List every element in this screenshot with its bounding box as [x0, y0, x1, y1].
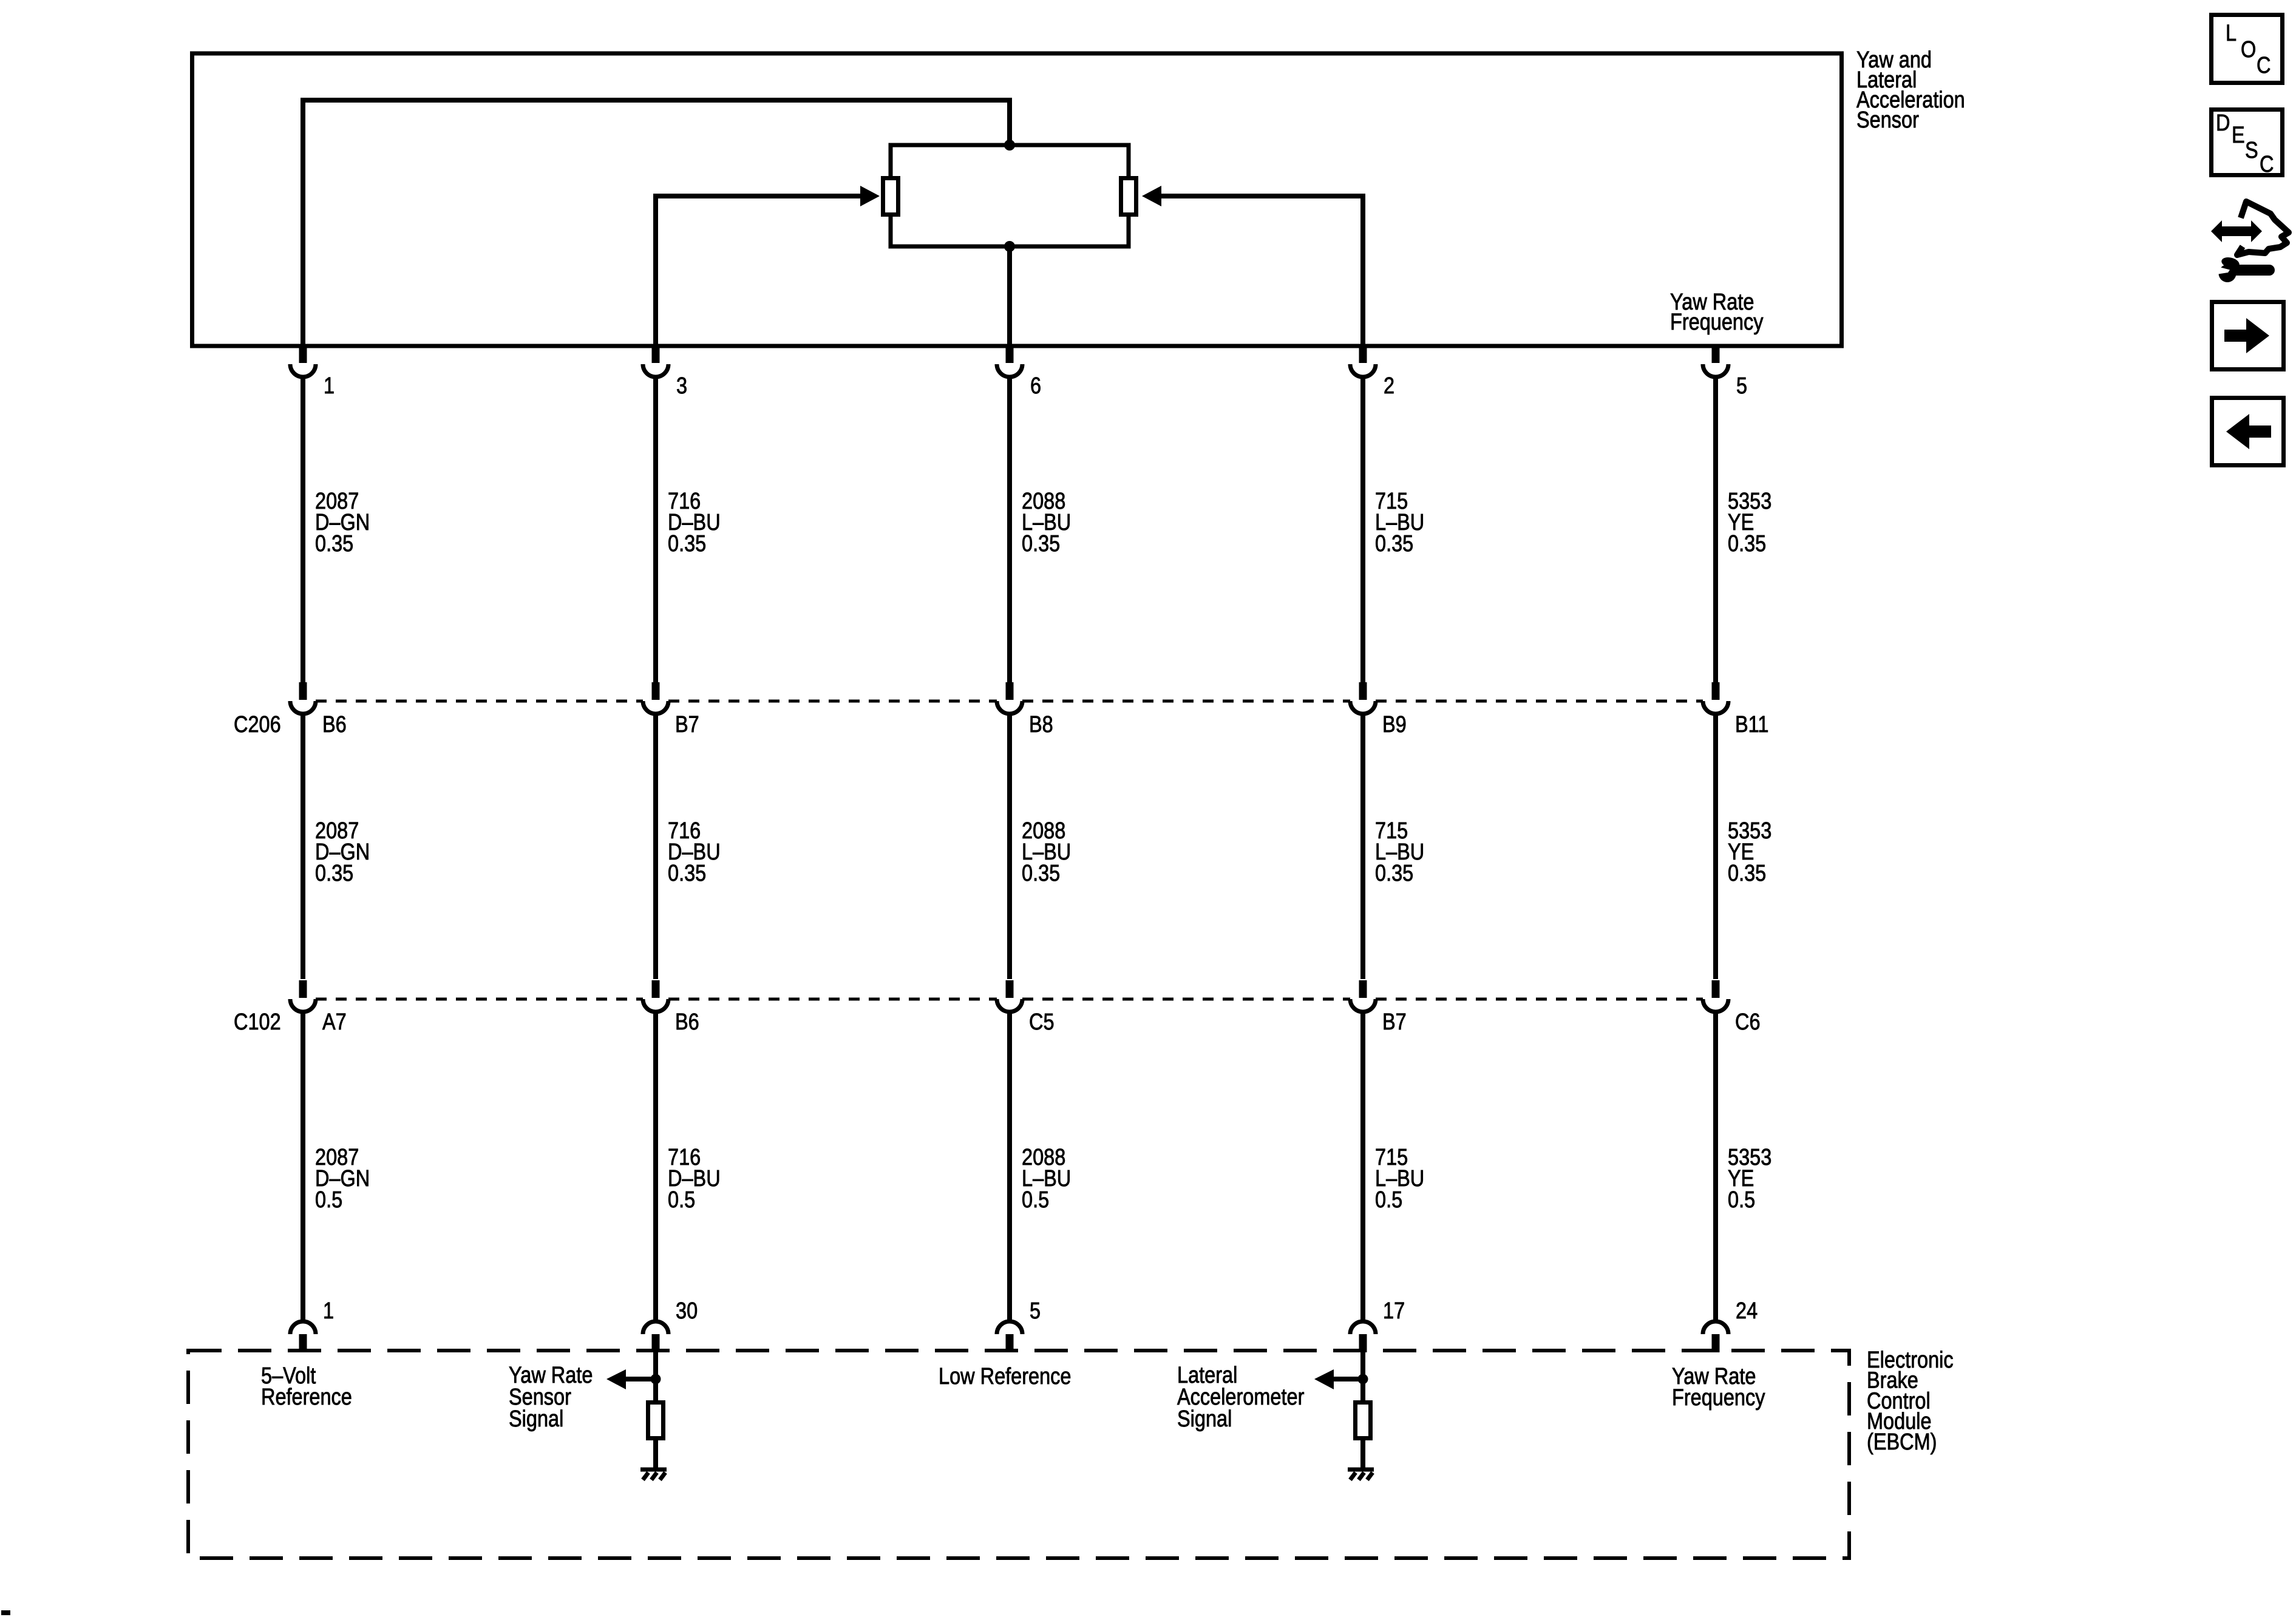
svg-text:5: 5 [1736, 373, 1747, 399]
svg-text:0.35: 0.35 [1375, 861, 1413, 886]
svg-text:0.5: 0.5 [1022, 1187, 1049, 1213]
svg-text:0.35: 0.35 [1728, 531, 1766, 557]
svg-text:0.35: 0.35 [668, 531, 706, 557]
svg-text:C102: C102 [234, 1009, 281, 1035]
svg-text:Low Reference: Low Reference [939, 1364, 1071, 1389]
svg-text:Signal: Signal [1177, 1406, 1232, 1432]
svg-text:24: 24 [1736, 1298, 1758, 1324]
svg-text:B7: B7 [1382, 1009, 1407, 1035]
svg-text:30: 30 [676, 1298, 698, 1324]
svg-text:2: 2 [1384, 373, 1394, 399]
svg-text:3: 3 [676, 373, 687, 399]
svg-text:17: 17 [1383, 1298, 1405, 1324]
svg-text:1: 1 [323, 1298, 334, 1324]
svg-text:0.35: 0.35 [1728, 861, 1766, 886]
svg-text:0.35: 0.35 [1375, 531, 1413, 557]
svg-text:Reference: Reference [261, 1385, 352, 1410]
svg-text:1: 1 [324, 373, 335, 399]
svg-text:6: 6 [1030, 373, 1041, 399]
svg-text:L: L [2226, 21, 2237, 46]
svg-text:S: S [2245, 138, 2258, 163]
svg-text:Frequency: Frequency [1670, 310, 1764, 335]
svg-text:B8: B8 [1029, 712, 1053, 737]
svg-text:0.5: 0.5 [315, 1187, 342, 1213]
svg-text:B11: B11 [1735, 712, 1768, 737]
svg-text:A7: A7 [322, 1009, 347, 1035]
svg-text:C: C [2260, 152, 2274, 177]
svg-text:C5: C5 [1029, 1009, 1055, 1035]
svg-text:0.35: 0.35 [668, 861, 706, 886]
svg-text:(EBCM): (EBCM) [1867, 1429, 1937, 1454]
svg-text:0.5: 0.5 [668, 1187, 695, 1213]
svg-text:O: O [2241, 37, 2256, 63]
svg-text:B6: B6 [322, 712, 347, 737]
svg-text:0.5: 0.5 [1728, 1187, 1755, 1213]
svg-text:0.35: 0.35 [1022, 531, 1060, 557]
svg-text:C: C [2257, 53, 2271, 78]
svg-text:Signal: Signal [509, 1406, 563, 1432]
svg-text:C6: C6 [1735, 1009, 1761, 1035]
svg-text:C206: C206 [234, 712, 281, 737]
svg-text:B7: B7 [675, 712, 699, 737]
svg-text:Sensor: Sensor [1856, 107, 1919, 133]
svg-text:Frequency: Frequency [1672, 1385, 1765, 1411]
svg-text:B6: B6 [675, 1009, 699, 1035]
svg-text:0.5: 0.5 [1375, 1187, 1402, 1213]
svg-text:0.35: 0.35 [1022, 861, 1060, 886]
svg-text:5: 5 [1030, 1298, 1041, 1324]
svg-text:0.35: 0.35 [315, 861, 353, 886]
svg-text:E: E [2232, 123, 2245, 148]
svg-text:D: D [2216, 110, 2230, 136]
svg-text:0.35: 0.35 [315, 531, 353, 557]
svg-text:B9: B9 [1382, 712, 1407, 737]
